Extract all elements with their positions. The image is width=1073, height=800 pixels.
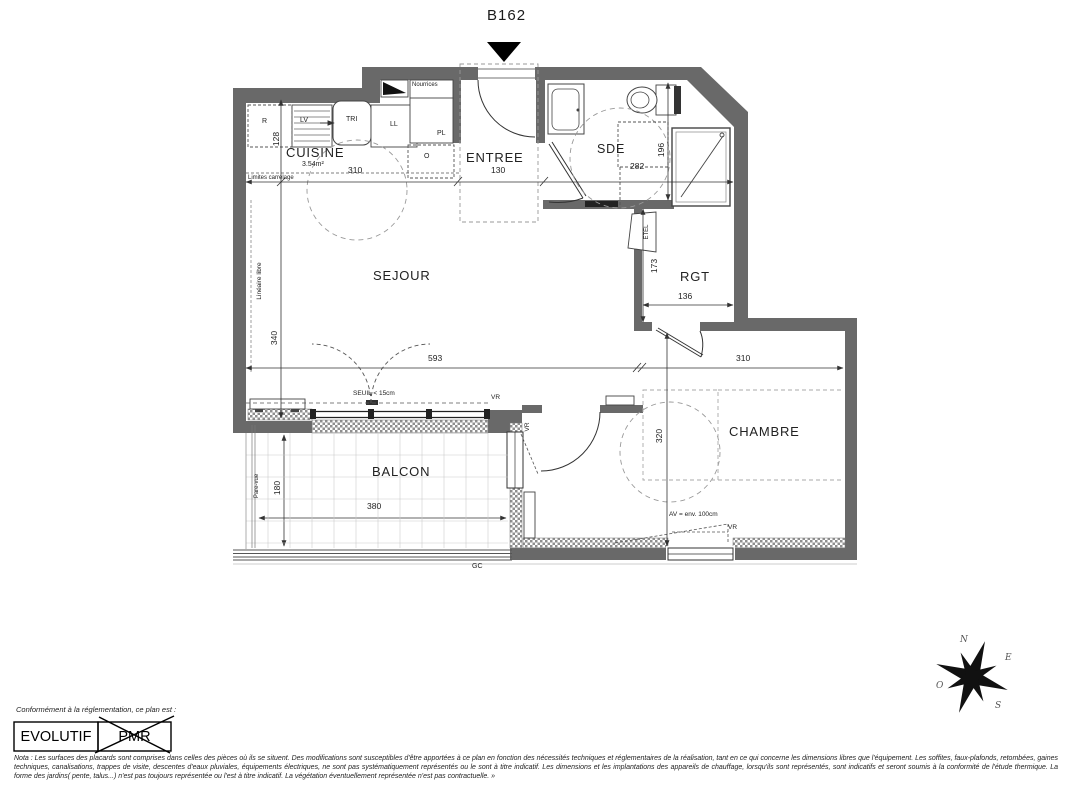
- unit-number: B162: [487, 8, 526, 23]
- label-limites-carrelage: Limites carrelage: [248, 175, 294, 181]
- compass-south: S: [995, 702, 1001, 711]
- compass-north: N: [960, 636, 968, 645]
- stamp-evolutif: EVOLUTIF: [14, 722, 98, 751]
- radiator-chambre-west: [524, 492, 535, 538]
- label-vr-chambre-south: VR: [728, 525, 737, 532]
- label-gc: GC: [472, 563, 483, 570]
- sde-door-threshold: [585, 201, 618, 207]
- balcony-railing: [233, 550, 512, 560]
- entry-door-arc: [478, 80, 535, 137]
- conformity-caption: Conformément à la réglementation, ce pla…: [16, 706, 176, 714]
- dim-rgt-width: 136: [678, 292, 692, 301]
- dim-chambre-depth: 320: [655, 429, 664, 443]
- nota-text: Nota : Les surfaces des placards sont co…: [14, 755, 1058, 781]
- stamp-pmr: PMR: [98, 722, 171, 751]
- interior-partitions: [453, 75, 735, 413]
- sink: [333, 101, 371, 145]
- room-label-sejour: SEJOUR: [373, 269, 431, 282]
- label-etel: ETEL: [644, 224, 650, 239]
- compass-star: [923, 628, 1021, 726]
- balcony-tile-grid: [246, 433, 508, 548]
- dim-sde-width: 282: [630, 162, 644, 171]
- placard: [410, 98, 453, 143]
- label-fridge: R: [262, 118, 267, 125]
- dim-sejour-depth: 340: [270, 331, 279, 345]
- rgt-door-leaf: [656, 330, 701, 357]
- etel-duct: [628, 212, 656, 252]
- chambre-south-window: [666, 546, 735, 562]
- label-placard: PL: [437, 130, 446, 137]
- dim-sde-depth: 196: [657, 143, 666, 157]
- room-label-balcon: BALCON: [372, 465, 430, 478]
- toilet-tank: [656, 85, 676, 115]
- floor-plan-drawing: [0, 0, 1073, 800]
- radiator-chambre-north: [606, 396, 634, 405]
- radiator-sejour: [250, 399, 305, 409]
- dim-balcon-width: 380: [367, 502, 381, 511]
- label-oven: O: [424, 153, 429, 160]
- label-nourrices: Nourrices: [412, 82, 438, 88]
- sde-fixtures: [548, 84, 730, 206]
- label-dishwasher: LV: [300, 117, 308, 124]
- chambre-door-arc: [541, 412, 600, 471]
- shower: [672, 128, 730, 206]
- dim-cuisine-depth: 128: [272, 132, 281, 146]
- dim-rgt-depth: 173: [650, 259, 659, 273]
- label-pare-vue: Pare-vue: [254, 474, 260, 498]
- label-seuil: SEUIL < 15cm: [353, 391, 395, 398]
- dim-sejour-width: 593: [428, 354, 442, 363]
- room-label-sde: SDE: [597, 143, 625, 156]
- dim-chambre-width: 310: [736, 354, 750, 363]
- room-label-entree: ENTREE: [466, 151, 524, 164]
- dim-entree-width: 130: [491, 166, 505, 175]
- label-av-height: AV = env. 100cm: [669, 512, 718, 519]
- label-vr-chambre-west: VR: [525, 422, 532, 431]
- dim-cuisine-width: 310: [348, 166, 362, 175]
- dim-balcon-depth: 180: [273, 481, 282, 495]
- unit-pointer-triangle: [487, 42, 521, 62]
- floor-plan-page: B162 CUISINE 3.54m² ENTREE SDE SEJOUR RG…: [0, 0, 1073, 800]
- compass-east: E: [1005, 654, 1012, 663]
- room-label-chambre: CHAMBRE: [729, 425, 800, 438]
- room-label-rgt: RGT: [680, 270, 710, 283]
- label-lineaire-libre: Linéaire libre: [257, 262, 264, 299]
- entry-threshold: [478, 69, 535, 78]
- cuisine-area: 3.54m²: [302, 161, 324, 168]
- compass-west: O: [936, 682, 943, 691]
- label-washer: LL: [390, 121, 398, 128]
- room-label-cuisine: CUISINE: [286, 146, 344, 159]
- label-vr-bay: VR: [491, 395, 500, 402]
- sde-door-leaf: [549, 144, 583, 198]
- chambre-west-window: [507, 432, 538, 488]
- label-sink-tri: TRI: [346, 116, 357, 123]
